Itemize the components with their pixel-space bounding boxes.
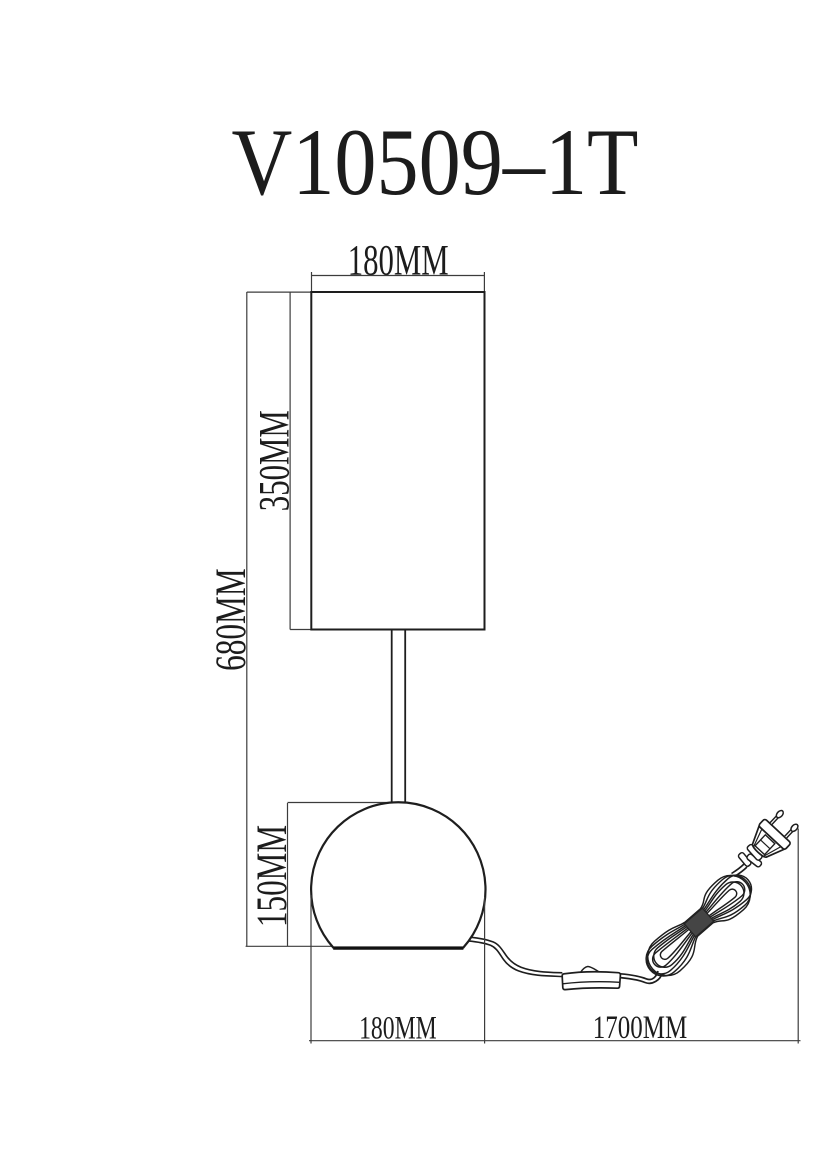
- svg-text:180MM: 180MM: [359, 1011, 437, 1047]
- svg-text:350MM: 350MM: [252, 410, 299, 511]
- svg-text:180MM: 180MM: [348, 238, 449, 285]
- svg-text:150MM: 150MM: [249, 825, 296, 927]
- svg-text:V10509–1T: V10509–1T: [232, 109, 639, 215]
- svg-text:680MM: 680MM: [208, 568, 255, 671]
- svg-text:1700MM: 1700MM: [593, 1010, 688, 1046]
